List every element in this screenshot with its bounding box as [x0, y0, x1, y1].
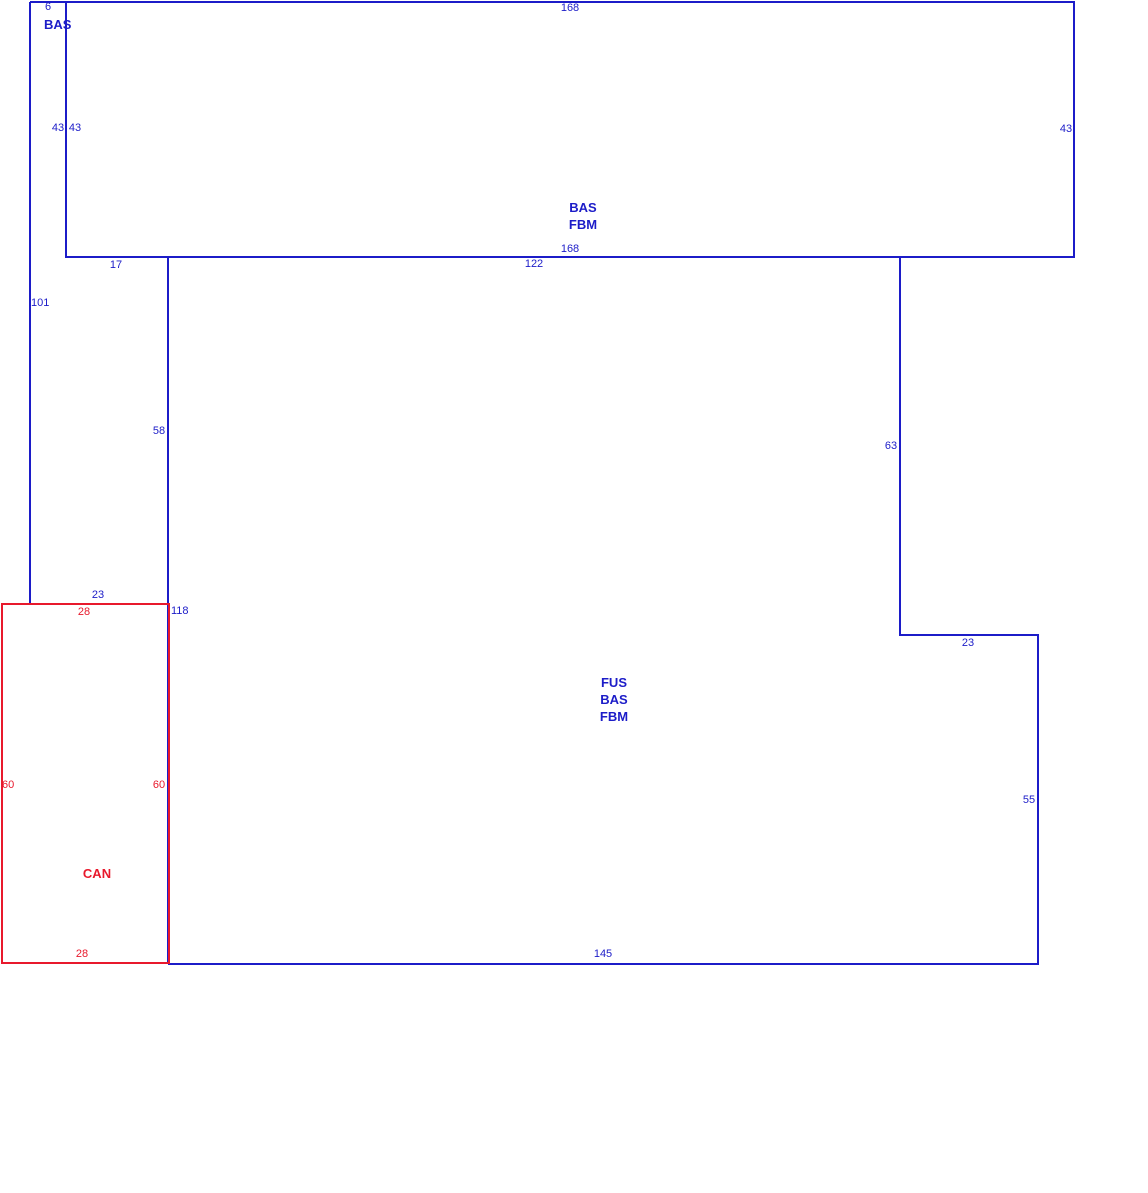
area-label-bas-fbm: BAS FBM [569, 199, 597, 233]
area-label-bas-fbm-line1: BAS [569, 199, 597, 216]
dim-label-168-bottom: 168 [561, 243, 579, 255]
dim-label-28-top: 28 [78, 606, 90, 618]
area-label-fus-line1: FUS [600, 674, 628, 691]
dim-label-60-left: 60 [2, 779, 14, 791]
footprint-sketch [0, 0, 1148, 1193]
dim-label-23-step: 23 [962, 637, 974, 649]
dim-label-6: 6 [45, 1, 51, 13]
dim-label-55: 55 [1023, 794, 1035, 806]
dim-label-145: 145 [594, 948, 612, 960]
dim-label-23-left: 23 [92, 589, 104, 601]
dim-label-118: 118 [171, 605, 189, 617]
dim-label-43-strip: 43 [52, 122, 64, 134]
can-outline [2, 604, 169, 963]
dim-label-63: 63 [885, 440, 897, 452]
dim-label-28-bottom: 28 [76, 948, 88, 960]
area-label-fus-line2: BAS [600, 691, 628, 708]
dim-label-122: 122 [525, 258, 543, 270]
area-label-bas-fbm-line2: FBM [569, 216, 597, 233]
dim-label-17: 17 [110, 259, 122, 271]
bas-fbm-outline [30, 2, 1074, 257]
area-label-fus-line3: FBM [600, 708, 628, 725]
dim-label-43-left: 43 [69, 122, 81, 134]
area-label-can: CAN [83, 865, 111, 882]
dim-label-101: 101 [31, 297, 49, 309]
fus-region-outline [168, 257, 1038, 964]
dim-label-60-right: 60 [153, 779, 165, 791]
dim-label-168-top: 168 [561, 2, 579, 14]
sketch-canvas: 6 BAS 168 43 43 43 BAS FBM 168 17 122 10… [0, 0, 1148, 1193]
area-label-fus-bas-fbm: FUS BAS FBM [600, 674, 628, 725]
dim-label-58: 58 [153, 425, 165, 437]
dim-label-43-right: 43 [1060, 123, 1072, 135]
area-label-bas-upper: BAS [44, 16, 71, 33]
bas-left-wing-outline [30, 2, 168, 604]
